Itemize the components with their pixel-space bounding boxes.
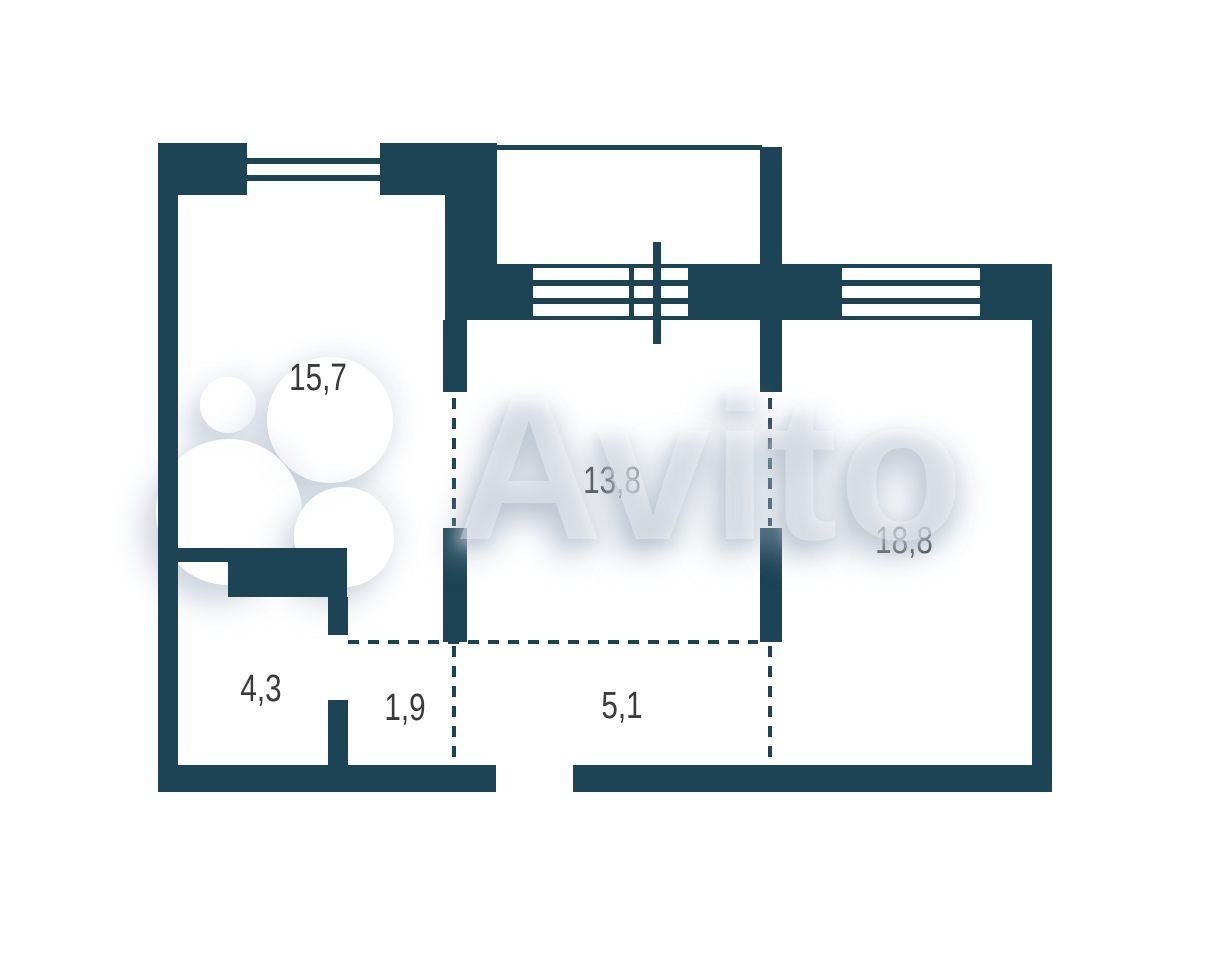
room-label-1-9: 1,9 <box>384 689 425 727</box>
room-label-5-1: 5,1 <box>601 687 642 725</box>
room-label-18-8: 18,8 <box>875 522 933 560</box>
room-label-15-7: 15,7 <box>289 359 347 397</box>
room-label-4-3: 4,3 <box>240 670 281 708</box>
room-label-13-8: 13,8 <box>583 462 641 500</box>
floor-plan-image: 15,7 13,8 18,8 4,3 1,9 5,1 Avito <box>0 0 1210 960</box>
room-labels: 15,7 13,8 18,8 4,3 1,9 5,1 <box>0 0 1210 960</box>
